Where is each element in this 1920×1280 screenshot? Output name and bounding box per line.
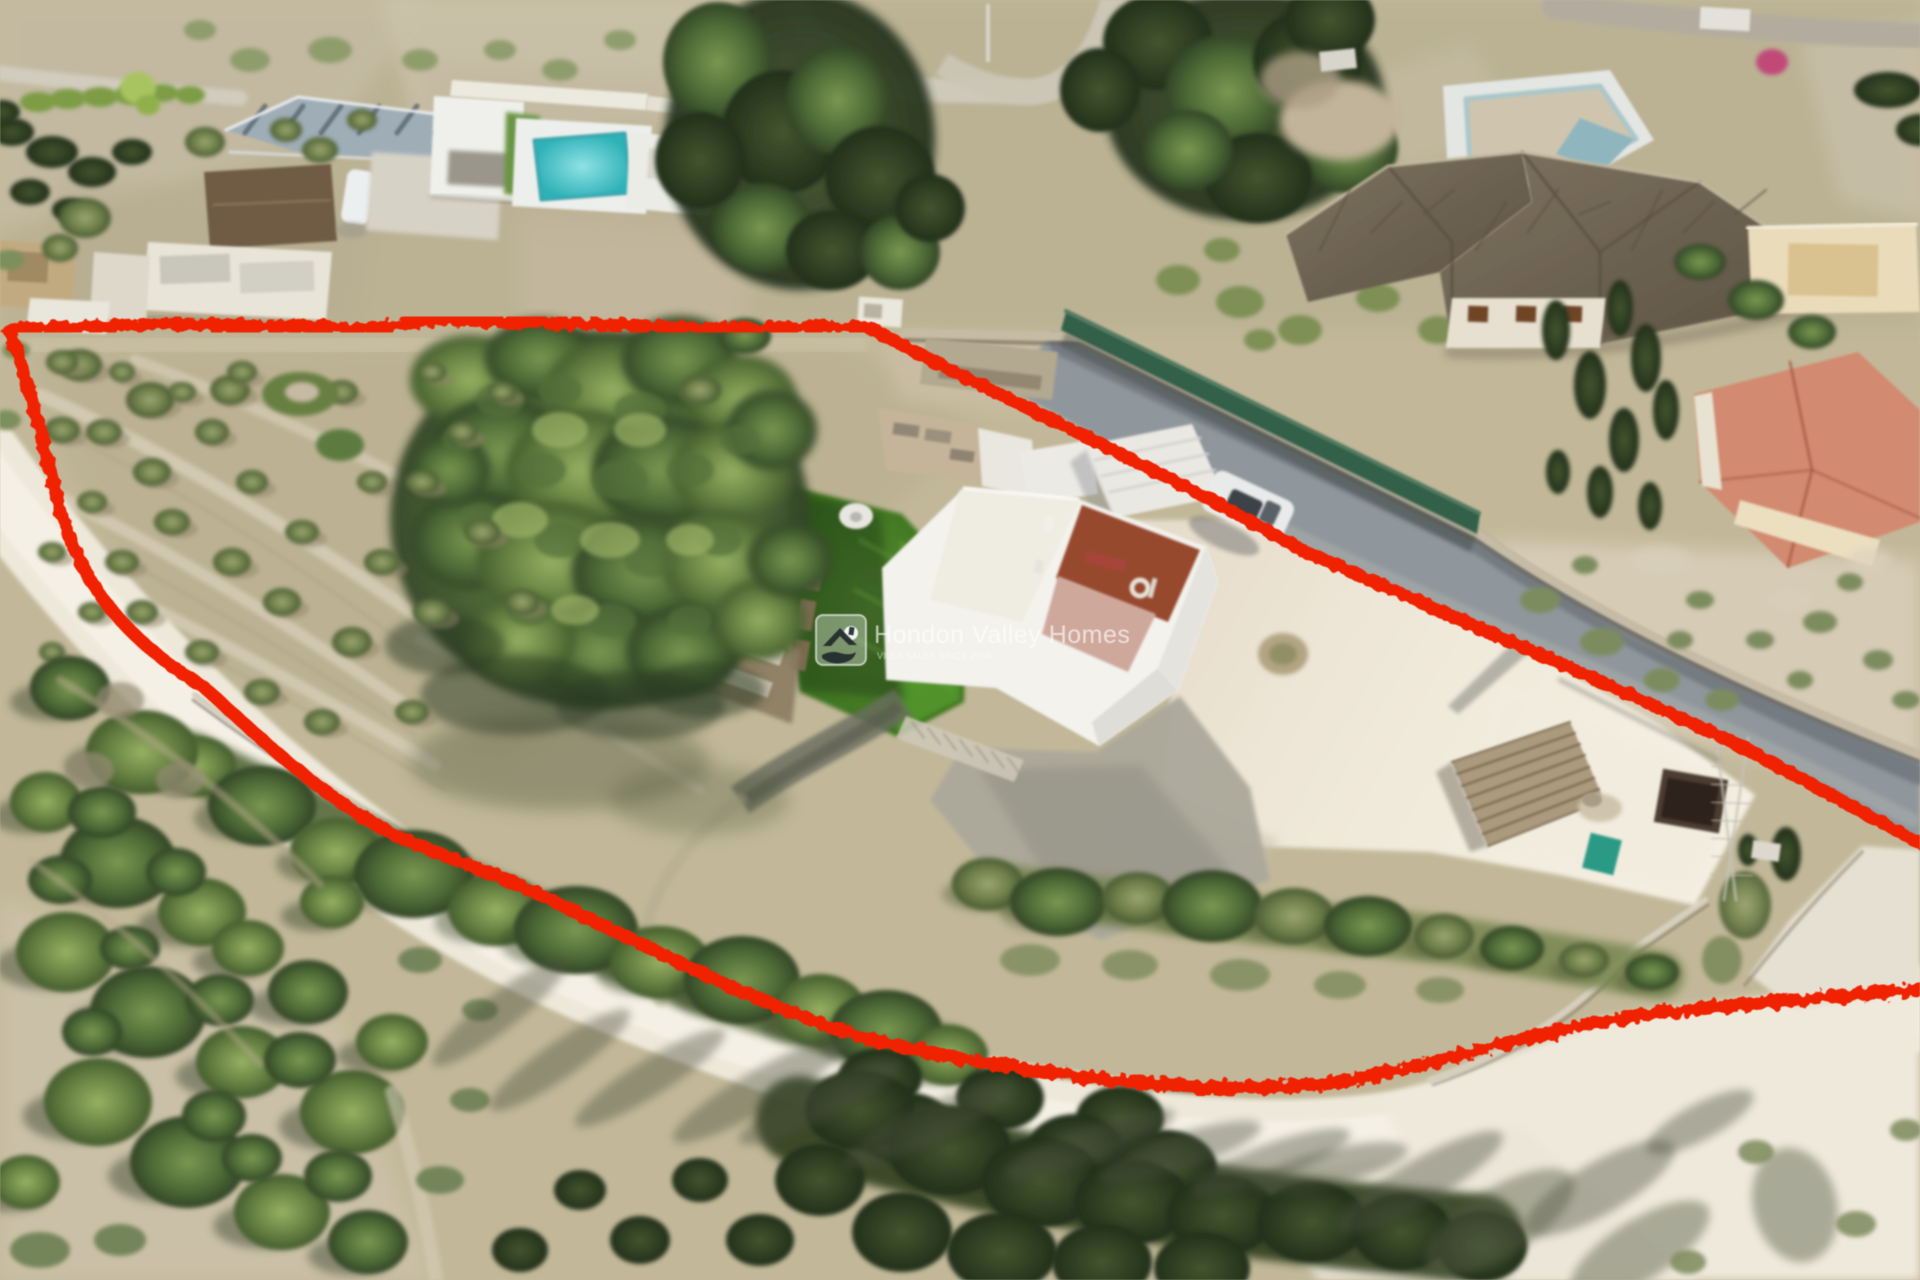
- svg-text:VILLA SALES SINCE 2006: VILLA SALES SINCE 2006: [877, 651, 992, 661]
- svg-text:Hondon Valley Homes: Hondon Valley Homes: [874, 621, 1130, 649]
